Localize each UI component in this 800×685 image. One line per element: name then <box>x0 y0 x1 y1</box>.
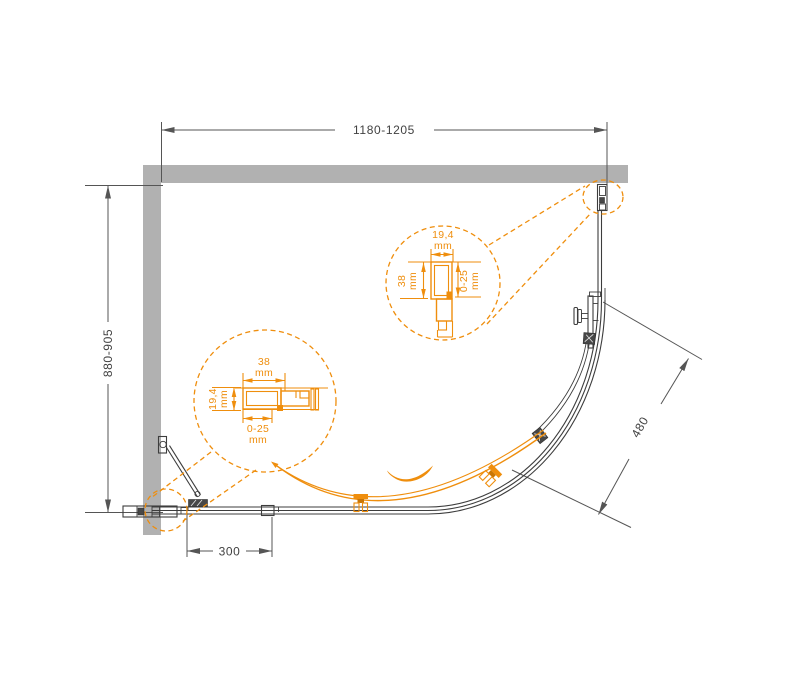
detail-left-bottom-unit: mm <box>249 434 267 446</box>
dim-width-label: 1180-1205 <box>353 123 415 137</box>
wall-top <box>143 165 628 183</box>
slide-direction-arrow-icon <box>387 466 433 482</box>
door-handle <box>574 308 588 325</box>
wall-profile-top-right <box>598 185 608 211</box>
detail-left-side-unit: mm <box>218 390 230 408</box>
detail-right-top-unit: mm <box>434 240 452 252</box>
dim-radius-label: 480 <box>628 414 651 440</box>
dim-line <box>599 459 630 515</box>
detail-right-left-unit: mm <box>407 272 419 290</box>
detail-leader <box>183 470 256 521</box>
detail-right-profile: 19,4 mm 38 mm 0-25 mm <box>396 229 481 337</box>
detail-callouts <box>145 180 623 531</box>
curved-rail-inner <box>428 300 598 507</box>
dim-panel-label: 300 <box>219 545 241 559</box>
dimension-radius: 480 <box>512 302 702 528</box>
open-door-outer-edge <box>277 433 546 501</box>
handle-stem <box>582 314 589 319</box>
sliding-door-glass <box>534 333 588 433</box>
detail-right-right-unit: mm <box>469 272 481 290</box>
handle-knob <box>574 308 578 325</box>
sliding-door-open-position <box>271 430 546 512</box>
dimension-panel: 300 <box>187 512 272 559</box>
detail-left-profile: 38 mm 19,4 mm 0-25 mm <box>207 356 328 446</box>
dim-depth-label: 880-905 <box>101 329 115 377</box>
diagram-canvas: 1180-1205 880-905 300 480 <box>0 0 800 685</box>
enclosure-frame <box>123 185 607 518</box>
curved-rail-mid <box>428 300 602 511</box>
open-door-inner-edge <box>277 430 544 497</box>
detail-leader <box>489 186 585 245</box>
shower-enclosure-diagram: 1180-1205 880-905 300 480 <box>0 0 800 685</box>
curved-rail-outer <box>428 300 605 514</box>
pivot-door-open <box>159 437 208 507</box>
ext-line <box>603 302 702 360</box>
open-door-roller-1 <box>354 494 369 512</box>
dim-line <box>661 359 689 405</box>
roller-upper <box>583 333 595 345</box>
wall-left <box>143 165 161 535</box>
ext-line <box>512 470 631 528</box>
detail-source-circle-right <box>583 180 623 214</box>
detail-left-top-unit: mm <box>255 367 273 379</box>
walls <box>143 165 628 535</box>
